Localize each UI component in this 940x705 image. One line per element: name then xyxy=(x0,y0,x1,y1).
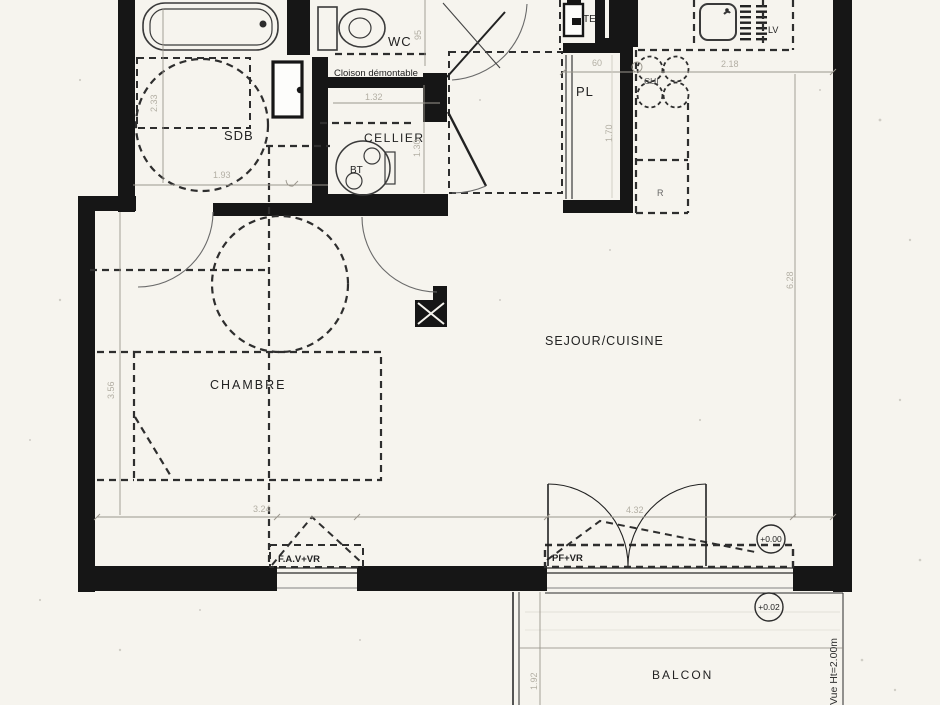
window-opening-symbols xyxy=(270,517,793,567)
cellier-door-leaf xyxy=(448,112,486,186)
wall-sdb-west xyxy=(118,0,135,212)
electrical-panel xyxy=(564,0,583,36)
wc-door-leaf xyxy=(443,3,500,68)
dim-pl-width: 60 xyxy=(592,58,602,68)
label-lv: LV xyxy=(768,25,778,35)
water-heater xyxy=(336,141,395,195)
sdb-zone xyxy=(137,58,250,128)
wall-shaft-stub xyxy=(433,286,447,302)
wall-te-east xyxy=(595,0,628,43)
sdb-turning-circle xyxy=(136,59,268,191)
dim-wc-depth: 95 xyxy=(413,30,423,40)
balcony xyxy=(513,592,843,705)
wall-south-1 xyxy=(78,566,277,591)
kitchen-sink xyxy=(700,4,736,40)
bathtub-drain xyxy=(260,21,267,28)
duct-shaft-symbol xyxy=(415,300,447,327)
room-label-sejour: SEJOUR/CUISINE xyxy=(545,334,664,348)
wall-tub-wc xyxy=(287,0,310,55)
dimension-lines xyxy=(94,0,836,705)
label-cloison: Cloison démontable xyxy=(334,68,418,79)
dim-sejour-depth: 6.28 xyxy=(785,271,795,289)
room-label-chambre: CHAMBRE xyxy=(210,378,287,392)
entry-door-leaf xyxy=(447,12,505,77)
entry-zone xyxy=(449,52,562,193)
label-vue: Vue Ht=2.00m xyxy=(828,638,840,705)
bed-outline xyxy=(97,352,381,480)
dim-sdb-depth: 2.33 xyxy=(149,94,159,112)
dim-sejour-width: 4.32 xyxy=(626,505,644,515)
wall-pl-north xyxy=(563,43,628,53)
doors xyxy=(138,3,793,588)
wall-kitchen-west xyxy=(628,0,638,47)
room-label-pl: PL xyxy=(576,84,594,99)
dim-cuisine-width: 2.18 xyxy=(721,59,739,69)
floor-plan: +0.00 +0.02 SDB WC CELLIER PL CHAMBRE SE… xyxy=(0,0,940,705)
door-arc-chambre-west xyxy=(138,212,213,287)
cellier-door-arc xyxy=(452,186,486,193)
label-bt: BT xyxy=(350,165,363,176)
label-refrigerateur: R xyxy=(657,188,664,198)
dim-cellier-width: 1.32 xyxy=(365,92,383,102)
dim-sdb-width: 1.93 xyxy=(213,170,231,180)
toilet xyxy=(318,7,385,50)
chambre-turning-circle xyxy=(212,216,348,352)
label-pfvr: PF+VR xyxy=(552,553,583,564)
walls xyxy=(78,0,852,592)
wall-chambre-west xyxy=(78,196,95,592)
wall-pl-south xyxy=(563,200,633,213)
level-balcon: +0.02 xyxy=(758,602,780,612)
wall-pl-east xyxy=(620,43,633,213)
door-arc-chambre-east xyxy=(362,217,437,292)
label-fav: F.A.V+VR xyxy=(278,554,320,565)
wall-slot xyxy=(605,0,609,38)
room-label-balcon: BALCON xyxy=(652,668,713,682)
label-cui: CUI xyxy=(644,76,659,86)
dim-cellier-depth: 1.30 xyxy=(412,139,422,157)
dim-chambre-depth: 3.56 xyxy=(106,381,116,399)
room-label-sdb: SDB xyxy=(224,128,254,143)
entry-door-arc xyxy=(452,4,527,80)
sdb-door-leaf xyxy=(273,62,303,117)
sink-drainer xyxy=(740,5,767,40)
wall-east xyxy=(833,0,852,592)
level-sejour: +0.00 xyxy=(760,534,782,544)
dim-chambre-width: 3.24 xyxy=(253,504,271,514)
label-te: TE xyxy=(583,14,596,25)
fixtures xyxy=(143,0,767,199)
room-label-wc: WC xyxy=(388,34,412,49)
placard-front xyxy=(566,55,572,199)
dim-balcon-depth: 1.92 xyxy=(529,672,539,690)
dim-pl-depth: 1.70 xyxy=(604,124,614,142)
wall-chambre-north xyxy=(213,203,448,216)
wall-wc-east xyxy=(423,73,447,122)
wall-south-2 xyxy=(357,566,547,591)
